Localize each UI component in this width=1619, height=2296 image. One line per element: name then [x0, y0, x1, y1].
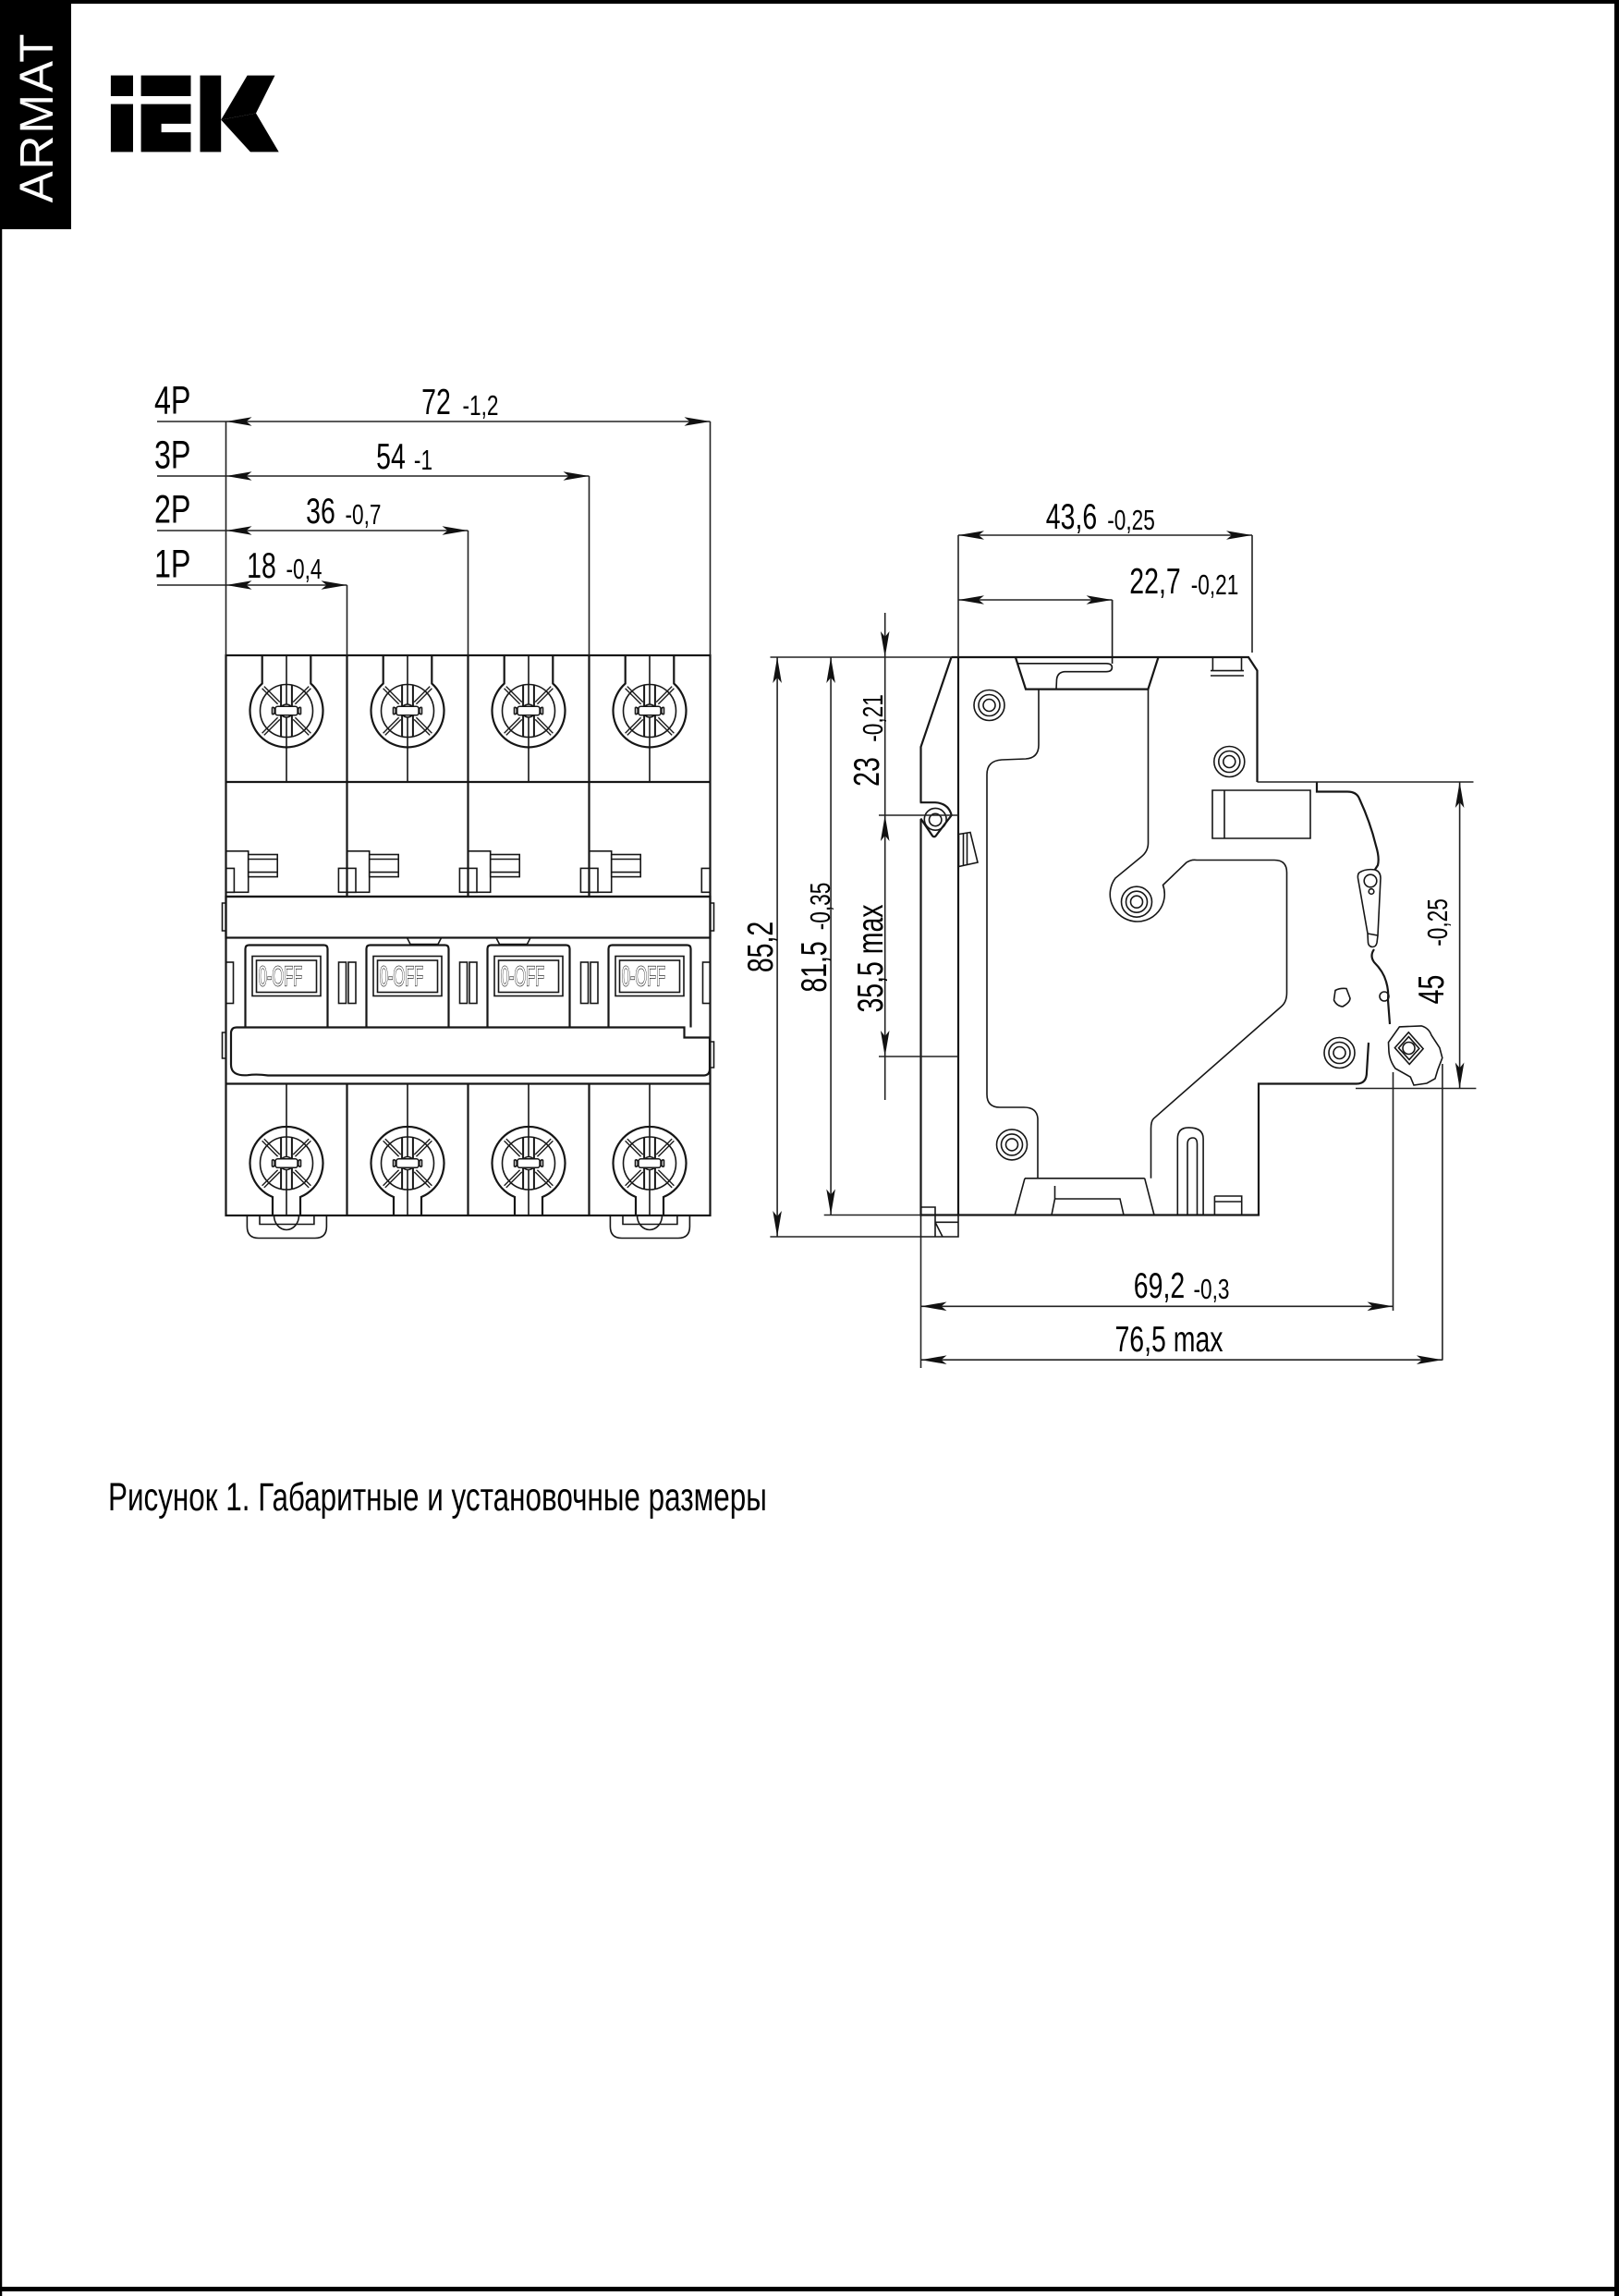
svg-text:-0,25: -0,25	[1420, 898, 1453, 946]
svg-text:85,2: 85,2	[741, 922, 781, 972]
svg-text:-0,21: -0,21	[856, 694, 888, 742]
svg-text:35,5 max: 35,5 max	[851, 904, 891, 1012]
svg-text:-1: -1	[414, 443, 432, 475]
svg-text:23: 23	[847, 757, 887, 787]
svg-text:-0,25: -0,25	[1107, 503, 1155, 535]
svg-text:2P: 2P	[154, 488, 190, 532]
svg-text:-0,21: -0,21	[1191, 568, 1239, 600]
svg-text:0-OFF: 0-OFF	[380, 961, 423, 993]
svg-text:-1,2: -1,2	[463, 388, 499, 421]
svg-text:-0,3: -0,3	[1194, 1272, 1230, 1304]
svg-text:Рисунок 1. Габаритные и устано: Рисунок 1. Габаритные и установочные раз…	[108, 1474, 767, 1519]
svg-text:45: 45	[1412, 975, 1452, 1005]
svg-text:-0,35: -0,35	[803, 883, 835, 931]
svg-text:0-OFF: 0-OFF	[259, 961, 302, 993]
svg-text:36: 36	[306, 492, 335, 531]
svg-text:-0,7: -0,7	[346, 497, 382, 530]
svg-text:1P: 1P	[154, 543, 190, 587]
svg-text:3P: 3P	[154, 434, 190, 478]
svg-text:81,5: 81,5	[795, 941, 834, 992]
svg-text:0-OFF: 0-OFF	[501, 961, 544, 993]
svg-text:4P: 4P	[154, 379, 190, 423]
svg-text:76,5 max: 76,5 max	[1114, 1320, 1223, 1360]
svg-text:22,7: 22,7	[1129, 562, 1180, 602]
svg-text:54: 54	[376, 437, 406, 477]
svg-text:69,2: 69,2	[1134, 1266, 1185, 1306]
svg-text:0-OFF: 0-OFF	[622, 961, 665, 993]
svg-text:18: 18	[247, 546, 276, 586]
svg-text:-0,4: -0,4	[286, 552, 323, 584]
svg-text:43,6: 43,6	[1046, 497, 1097, 537]
svg-text:ARMAT: ARMAT	[10, 32, 63, 203]
svg-text:72: 72	[421, 383, 451, 422]
